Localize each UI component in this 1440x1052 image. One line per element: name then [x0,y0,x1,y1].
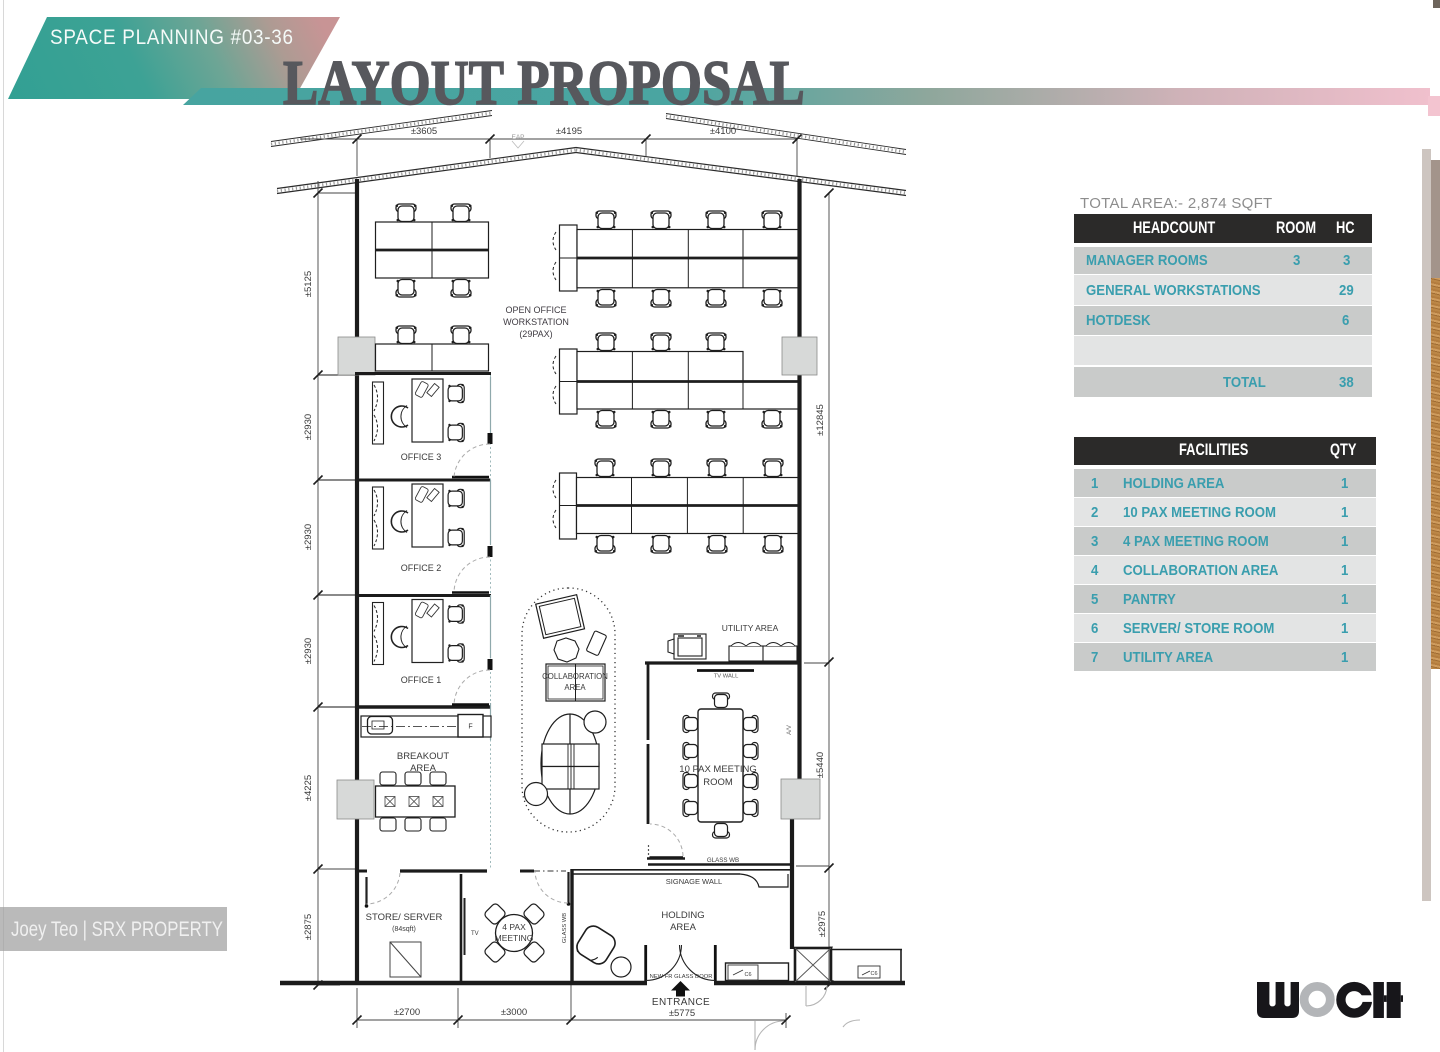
svg-text:WORKSTATION: WORKSTATION [503,317,569,327]
svg-text:±4195: ±4195 [556,126,582,137]
svg-text:C6: C6 [744,972,751,978]
svg-text:HOLDING: HOLDING [661,910,704,921]
svg-text:±2700: ±2700 [394,1007,420,1018]
svg-text:BREAKOUT: BREAKOUT [397,751,449,762]
svg-text:±2930: ±2930 [303,638,314,664]
svg-text:F: F [468,724,472,731]
svg-text:(29PAX): (29PAX) [519,329,552,339]
svg-text:GLASS WB: GLASS WB [707,857,739,864]
svg-text:A/V: A/V [787,725,793,735]
svg-text:10 PAX MEETING: 10 PAX MEETING [679,764,756,775]
svg-text:SIGNAGE WALL: SIGNAGE WALL [666,877,722,886]
svg-text:STORE/ SERVER: STORE/ SERVER [366,912,443,923]
svg-text:±2930: ±2930 [303,524,314,550]
svg-text:±2930: ±2930 [303,414,314,440]
svg-text:TV WALL: TV WALL [714,674,739,680]
svg-text:±5440: ±5440 [815,752,826,778]
svg-text:ENTRANCE: ENTRANCE [652,997,710,1008]
svg-text:±12845: ±12845 [815,404,826,436]
svg-text:±4225: ±4225 [303,775,314,801]
svg-text:±3000: ±3000 [501,1007,527,1018]
svg-text:MEETING: MEETING [495,933,534,943]
svg-text:EAP: EAP [511,134,524,141]
svg-text:(84sqft): (84sqft) [392,926,416,933]
svg-text:±2875: ±2875 [303,914,314,940]
svg-text:4 PAX: 4 PAX [502,922,526,932]
svg-text:ROOM: ROOM [703,777,733,788]
svg-text:OFFICE 2: OFFICE 2 [401,563,442,573]
svg-text:±2975: ±2975 [817,911,828,937]
svg-text:±4100: ±4100 [710,126,736,137]
svg-text:NEW FR GLASS DOOR: NEW FR GLASS DOOR [650,974,713,980]
svg-text:COLLABORATION: COLLABORATION [542,672,608,681]
svg-text:OFFICE 3: OFFICE 3 [401,452,442,462]
svg-text:±3605: ±3605 [411,126,437,137]
svg-text:±5775: ±5775 [669,1008,695,1019]
svg-text:AREA: AREA [670,922,697,933]
svg-text:AREA: AREA [564,683,586,692]
svg-text:OPEN OFFICE: OPEN OFFICE [505,305,566,315]
svg-text:UTILITY AREA: UTILITY AREA [722,623,779,633]
svg-text:±5125: ±5125 [303,271,314,297]
svg-text:OFFICE 1: OFFICE 1 [401,675,442,685]
svg-text:TV: TV [471,931,479,937]
svg-text:C6: C6 [870,971,877,977]
svg-text:GLASS WB: GLASS WB [562,913,568,943]
